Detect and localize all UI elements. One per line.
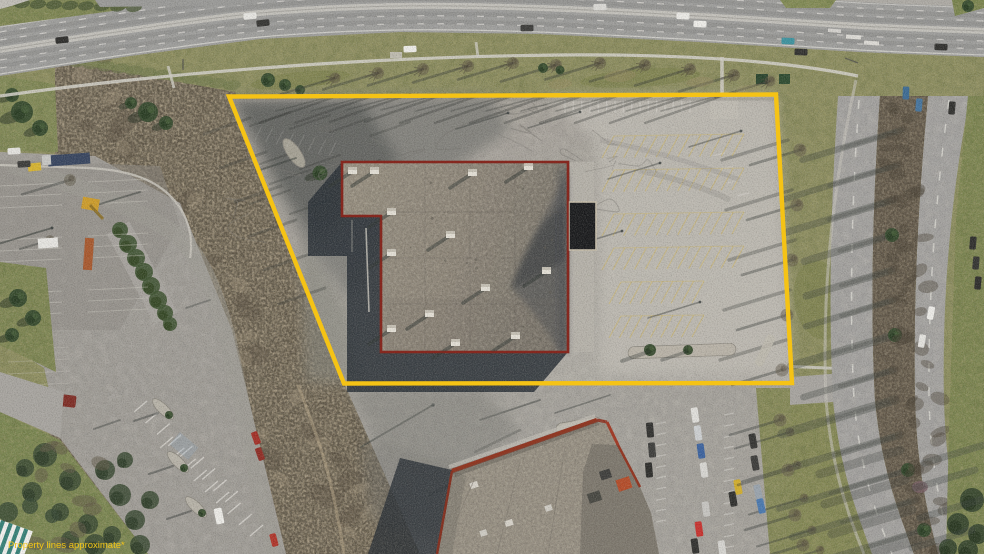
svg-text:Property lines approximate*: Property lines approximate* xyxy=(8,540,125,551)
